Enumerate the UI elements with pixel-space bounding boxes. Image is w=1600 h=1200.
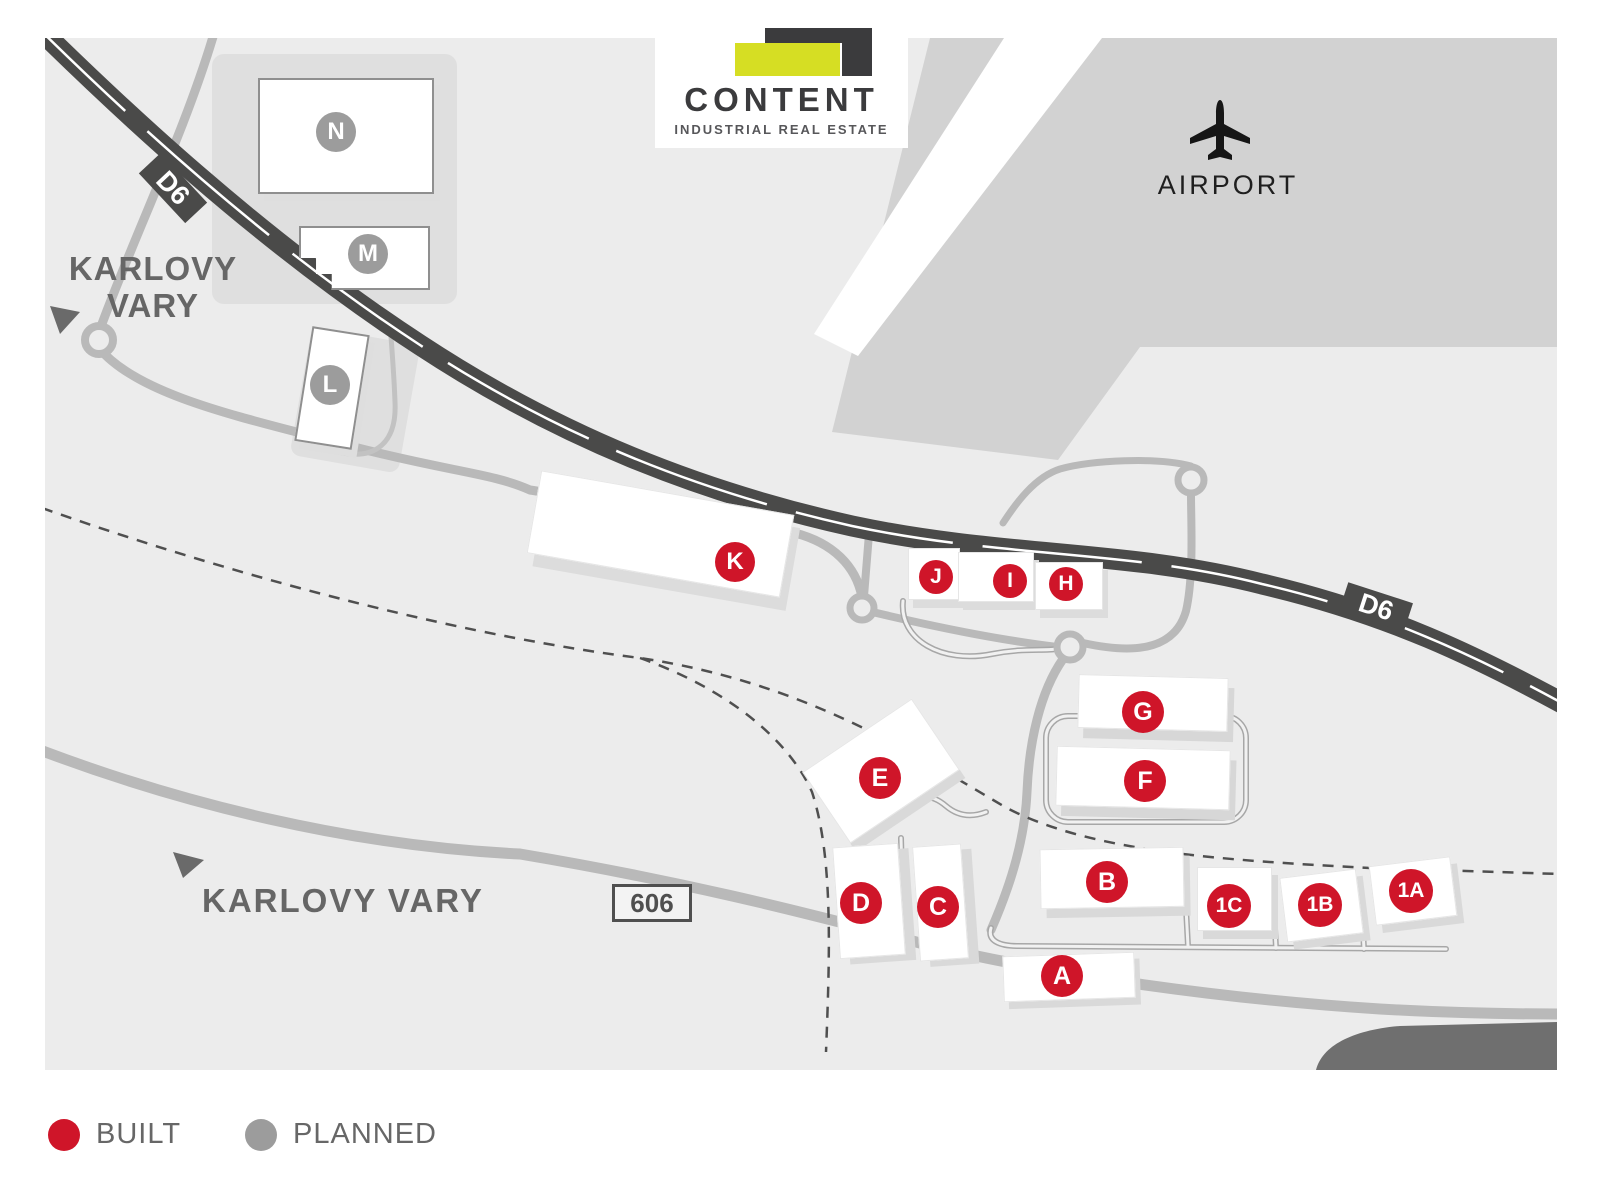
marker-d[interactable]: D — [840, 882, 882, 924]
logo-mark-dark-block-icon — [842, 43, 872, 76]
marker-1c[interactable]: 1C — [1207, 884, 1251, 928]
logo-mark-yellow-icon — [735, 43, 840, 76]
legend-built: BUILT — [48, 1118, 181, 1151]
roundabout — [850, 596, 874, 620]
karlovy-vary-line1: KARLOVY — [58, 250, 248, 287]
karlovy-vary-label-top: KARLOVY VARY — [58, 250, 248, 324]
logo-title: CONTENT — [655, 81, 908, 119]
airport-label: AIRPORT — [1118, 170, 1338, 201]
marker-h[interactable]: H — [1049, 567, 1083, 601]
legend-planned-label: PLANNED — [293, 1118, 437, 1151]
site-map: D6 D6 — [0, 0, 1600, 1200]
marker-l[interactable]: L — [310, 365, 350, 405]
road-606-sign: 606 — [612, 884, 692, 922]
logo-mark-dark-bar-icon — [765, 28, 872, 43]
logo: CONTENT INDUSTRIAL REAL ESTATE — [655, 25, 908, 148]
marker-g[interactable]: G — [1122, 691, 1164, 733]
planned-dot-icon — [245, 1119, 277, 1151]
marker-k[interactable]: K — [715, 542, 755, 582]
marker-m[interactable]: M — [348, 234, 388, 274]
marker-n[interactable]: N — [316, 112, 356, 152]
roundabout — [85, 326, 113, 354]
marker-e[interactable]: E — [859, 757, 901, 799]
site-map-page: D6 D6 — [0, 0, 1600, 1200]
marker-1a[interactable]: 1A — [1389, 869, 1433, 913]
logo-subtitle: INDUSTRIAL REAL ESTATE — [655, 122, 908, 137]
roundabout — [1178, 467, 1204, 493]
legend-built-label: BUILT — [96, 1118, 181, 1151]
roundabout — [1057, 634, 1083, 660]
marker-i[interactable]: I — [993, 564, 1027, 598]
marker-1b[interactable]: 1B — [1298, 883, 1342, 927]
marker-f[interactable]: F — [1124, 760, 1166, 802]
legend-planned: PLANNED — [245, 1118, 437, 1151]
marker-j[interactable]: J — [919, 560, 953, 594]
built-dot-icon — [48, 1119, 80, 1151]
marker-c[interactable]: C — [917, 886, 959, 928]
highway-ramp — [864, 534, 869, 596]
marker-b[interactable]: B — [1086, 861, 1128, 903]
marker-a[interactable]: A — [1041, 955, 1083, 997]
karlovy-vary-label-bottom: KARLOVY VARY — [202, 882, 484, 920]
karlovy-vary-line2: VARY — [58, 287, 248, 324]
